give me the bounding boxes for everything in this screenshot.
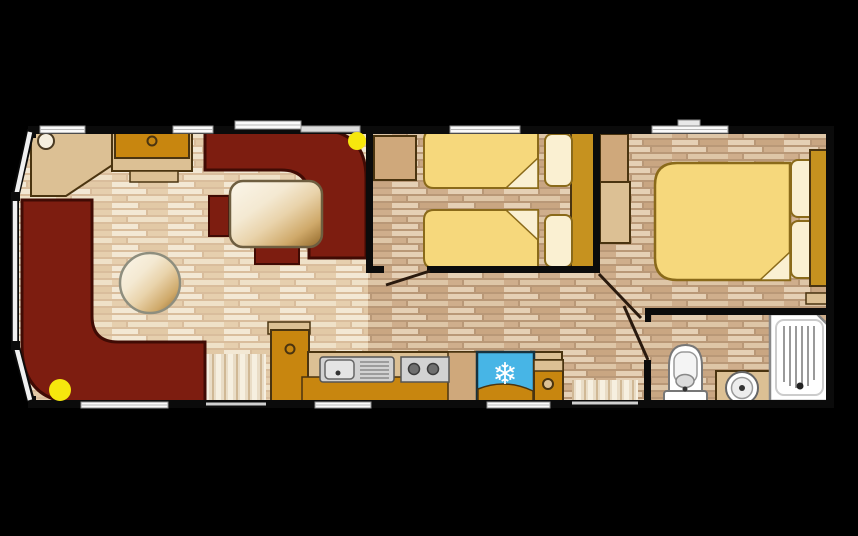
- kitchen-tall-cabinet-knob: [286, 345, 295, 354]
- toilet-seat: [676, 375, 694, 388]
- basin-drain: [739, 385, 745, 391]
- double-wardrobe: [600, 182, 630, 243]
- bay-window-joint-top: [11, 192, 20, 201]
- wall-twin-bottom: [427, 266, 599, 273]
- dining-table: [230, 181, 322, 247]
- floor-plan: ❄: [0, 0, 858, 536]
- wall-twin-double: [593, 126, 600, 273]
- fridge-snowflake-icon: ❄: [492, 357, 517, 392]
- rear-door-threshold: [572, 380, 638, 402]
- lounge-ceiling-light: [49, 379, 71, 401]
- dining-ceiling-light: [348, 132, 366, 150]
- shower-drain: [797, 383, 804, 390]
- sink-tap: [336, 371, 341, 376]
- twin-bedside-cabinet: [374, 136, 416, 180]
- kitchen-end-cabinet-top: [534, 360, 563, 371]
- roof-vent: [678, 120, 700, 126]
- dining-bench-stub: [255, 247, 299, 264]
- twin-headboard-panel: [571, 130, 596, 268]
- tv-unit-knob: [148, 137, 157, 146]
- floor-plan-shapes: ❄: [11, 120, 834, 408]
- floor-plan-canvas: ❄: [0, 0, 858, 536]
- wall-lounge-twin-stub: [366, 266, 384, 273]
- wall-lounge-twin: [366, 126, 373, 273]
- round-table: [120, 253, 180, 313]
- toilet-base-dot: [683, 387, 688, 392]
- main-door-threshold: [206, 354, 266, 402]
- kitchen-divider-unit: [448, 352, 478, 403]
- wall-bathroom-top: [645, 308, 832, 315]
- hob-burner-left: [409, 364, 420, 375]
- twin-pillow-2: [545, 215, 572, 267]
- tv-unit-step: [130, 171, 178, 182]
- twin-pillow-1: [545, 134, 572, 186]
- hob-burner-right: [428, 364, 439, 375]
- dining-bench-left: [209, 196, 229, 236]
- double-headboard: [810, 150, 828, 286]
- wall-right: [826, 126, 834, 408]
- wall-bathroom-left: [644, 360, 651, 406]
- window-dining-2: [301, 126, 360, 132]
- kitchen-end-cabinet-knob: [543, 379, 553, 389]
- double-dresser: [600, 134, 628, 182]
- bay-window-joint-bottom: [11, 341, 20, 350]
- double-bed: [655, 163, 790, 280]
- corner-lamp: [38, 133, 54, 149]
- wall-bathroom-top-stub: [645, 308, 651, 322]
- sink-bowl: [325, 360, 354, 379]
